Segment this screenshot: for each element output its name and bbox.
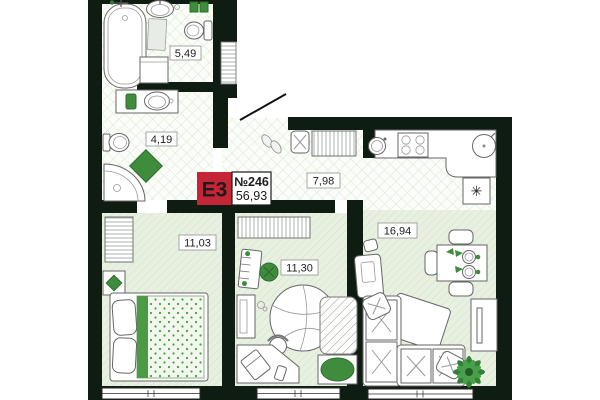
area-label-bathroom-small: 4,19: [146, 132, 177, 146]
vent-symbol-icon: ✳: [471, 183, 483, 199]
area-value: 16,94: [384, 226, 412, 238]
plate: [463, 266, 476, 279]
plant: [453, 356, 485, 388]
bath-mat: [147, 19, 167, 51]
area-label-hall-kitchen: 7,98: [307, 173, 340, 188]
toilet: [185, 21, 213, 40]
tv-stand: [471, 299, 497, 351]
soap-dispenser: [126, 94, 136, 109]
entry-door: [240, 94, 286, 120]
area-value: 5,49: [175, 48, 196, 60]
sofa-cushion: [401, 349, 431, 383]
dining-chair: [449, 230, 473, 244]
double-bed: [110, 293, 208, 381]
nightstand: [103, 271, 125, 295]
window-kids-room: [257, 388, 340, 399]
stool: [260, 263, 278, 281]
dining-table: [437, 245, 487, 281]
cooktop: [398, 133, 428, 157]
area-label-living-room: 16,94: [378, 223, 417, 238]
plate: [463, 251, 476, 264]
pouf: [291, 131, 309, 153]
area-value: 11,30: [286, 263, 313, 275]
ottoman: [318, 355, 357, 384]
dining-chair: [425, 251, 438, 275]
shoe-rack: [312, 131, 356, 156]
daybed: [320, 297, 357, 354]
wardrobe: [238, 217, 310, 238]
sofa-cushion: [366, 342, 397, 382]
unit-badge: E3 №246 56,93: [197, 172, 271, 205]
hall-closet: [221, 42, 236, 84]
area-label-kids-room: 11,30: [281, 260, 318, 275]
vent-shaft: ✳: [463, 178, 490, 204]
area-value: 7,98: [313, 176, 334, 188]
unit-number: №246: [234, 175, 269, 189]
area-value: 4,19: [151, 134, 172, 146]
floor-plan-canvas: ✳: [0, 0, 600, 400]
window-bedroom: [102, 388, 200, 399]
area-label-bathroom-large: 5,49: [170, 46, 201, 60]
floor-plan: ✳: [0, 0, 600, 400]
dining-chair: [449, 282, 473, 296]
toilet: [103, 134, 129, 152]
vanity-sink: [116, 90, 178, 113]
area-value: 11,03: [184, 238, 211, 250]
area-label-bedroom: 11,03: [179, 235, 216, 250]
unit-total-area: 56,93: [236, 189, 267, 203]
washing-machine: [140, 57, 168, 83]
badge-code: E3: [202, 179, 228, 202]
piano-keyboard: [238, 249, 262, 289]
wardrobe: [105, 217, 133, 262]
window-living-room: [368, 389, 473, 399]
